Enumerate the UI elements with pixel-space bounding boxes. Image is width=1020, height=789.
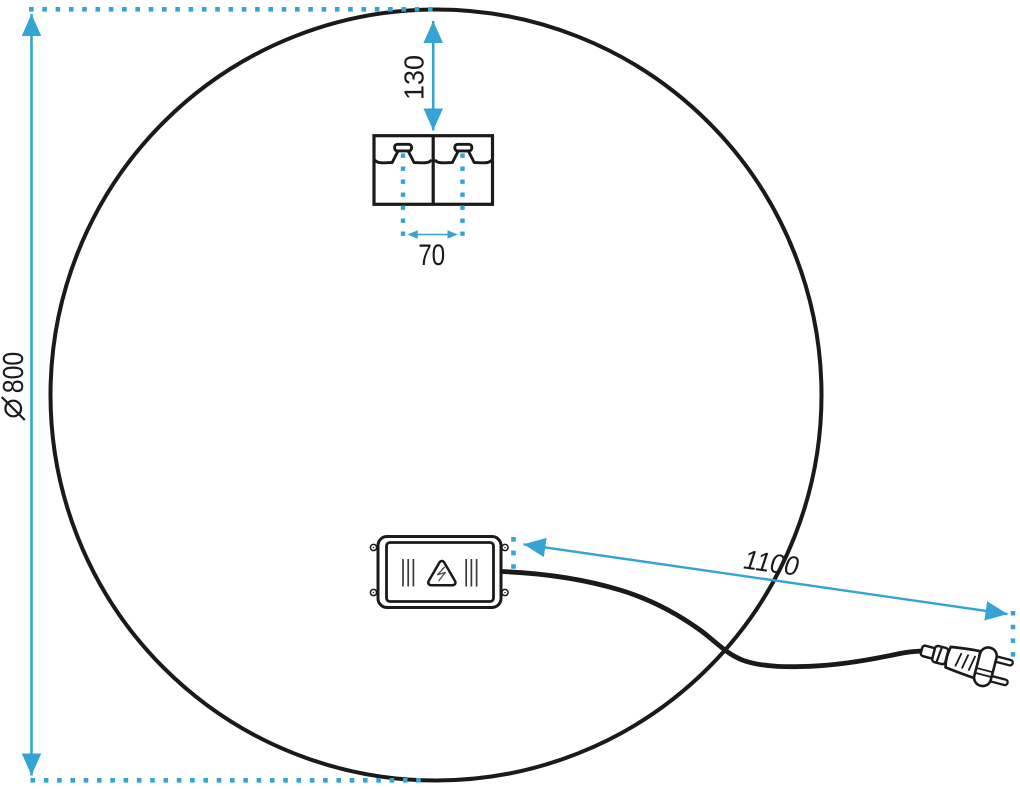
svg-text:130: 130 — [398, 55, 429, 100]
svg-text:70: 70 — [418, 239, 445, 272]
svg-text:800: 800 — [0, 352, 30, 394]
